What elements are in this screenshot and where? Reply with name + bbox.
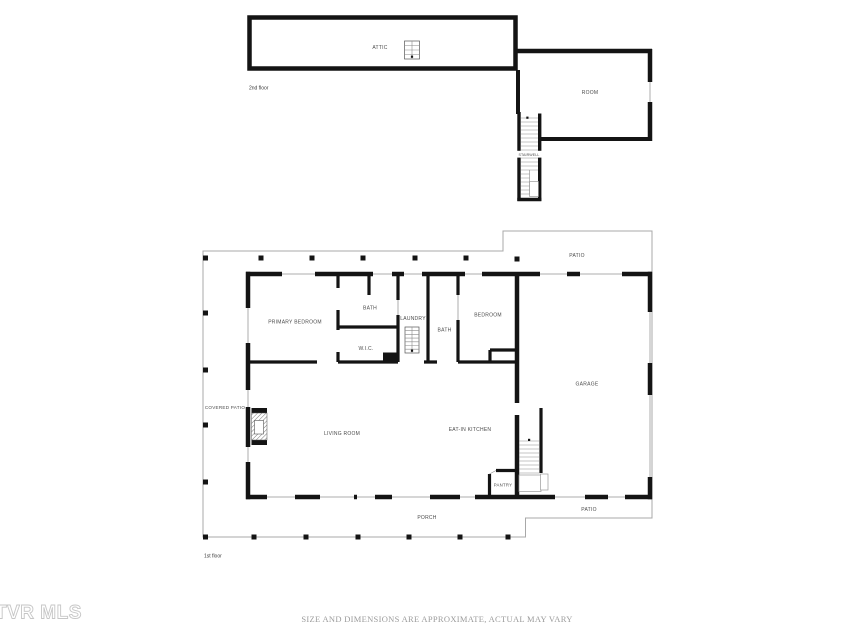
room-label-stairwell: STAIRWELL: [519, 153, 540, 157]
porch-post: [203, 480, 208, 485]
room-label-bath1: BATH: [363, 306, 377, 312]
porch-post: [259, 256, 264, 261]
second-floor: ATTIC 2nd floor ROOM STAIRWELL: [249, 18, 652, 202]
porch-post: [413, 256, 418, 261]
garage-stairs-icon: [519, 439, 548, 492]
room-label-bath2: BATH: [438, 328, 452, 334]
porch-post: [203, 423, 208, 428]
porch-post: [356, 535, 361, 540]
porch-post: [506, 535, 511, 540]
stairwell: STAIRWELL: [516, 112, 542, 201]
attic-walls: [250, 18, 516, 69]
porch-post: [361, 256, 366, 261]
interior-walls: [248, 274, 541, 497]
laundry-stairs-icon: [405, 327, 419, 353]
room-label-living-room: LIVING ROOM: [324, 431, 360, 437]
first-floor-label: 1st floor: [204, 554, 222, 560]
room-label-wic: W.I.C.: [358, 346, 373, 352]
room-label-covered-patio: COVERED PATIO: [205, 405, 246, 410]
room-label-laundry: LAUNDRY: [400, 316, 426, 322]
pantry-door-line: [490, 471, 497, 475]
floorplan-canvas: ATTIC 2nd floor ROOM STAIRWELL: [0, 0, 853, 640]
porch-post: [464, 256, 469, 261]
room-label-patio-upper: PATIO: [569, 253, 585, 259]
watermark-text: TVR MLS: [0, 603, 82, 624]
second-floor-label: 2nd floor: [249, 86, 269, 92]
room-label-attic: ATTIC: [372, 45, 387, 51]
room-label-bedroom: BEDROOM: [474, 313, 502, 319]
porch-post: [515, 257, 520, 262]
porch-post: [407, 535, 412, 540]
closet-walls: [490, 350, 517, 362]
room-label-primary-bedroom: PRIMARY BEDROOM: [268, 320, 322, 326]
disclaimer-text: SIZE AND DIMENSIONS ARE APPROXIMATE, ACT…: [301, 614, 572, 624]
built-in-block: [383, 353, 397, 363]
porch-post: [458, 535, 463, 540]
porch-post: [203, 311, 208, 316]
porch-post: [203, 368, 208, 373]
fireplace-icon: [252, 408, 268, 445]
floorplan-svg: ATTIC 2nd floor ROOM STAIRWELL: [0, 0, 853, 640]
porch-post: [304, 535, 309, 540]
porch-post: [203, 256, 208, 261]
attic-stairs-icon: [405, 41, 420, 59]
porch-post: [310, 256, 315, 261]
porch-post: [252, 535, 257, 540]
room-label-patio-lower: PATIO: [581, 507, 597, 513]
room-label-garage: GARAGE: [576, 382, 599, 388]
first-floor: PRIMARY BEDROOM BATH W.I.C. LAUNDRY BATH…: [203, 231, 652, 560]
room-label-pantry: PANTRY: [494, 483, 513, 488]
room-label-porch: PORCH: [417, 515, 436, 521]
room-label-eat-in-kitchen: EAT-IN KITCHEN: [449, 427, 492, 433]
room-label-room: ROOM: [582, 90, 599, 96]
porch-post: [203, 535, 208, 540]
